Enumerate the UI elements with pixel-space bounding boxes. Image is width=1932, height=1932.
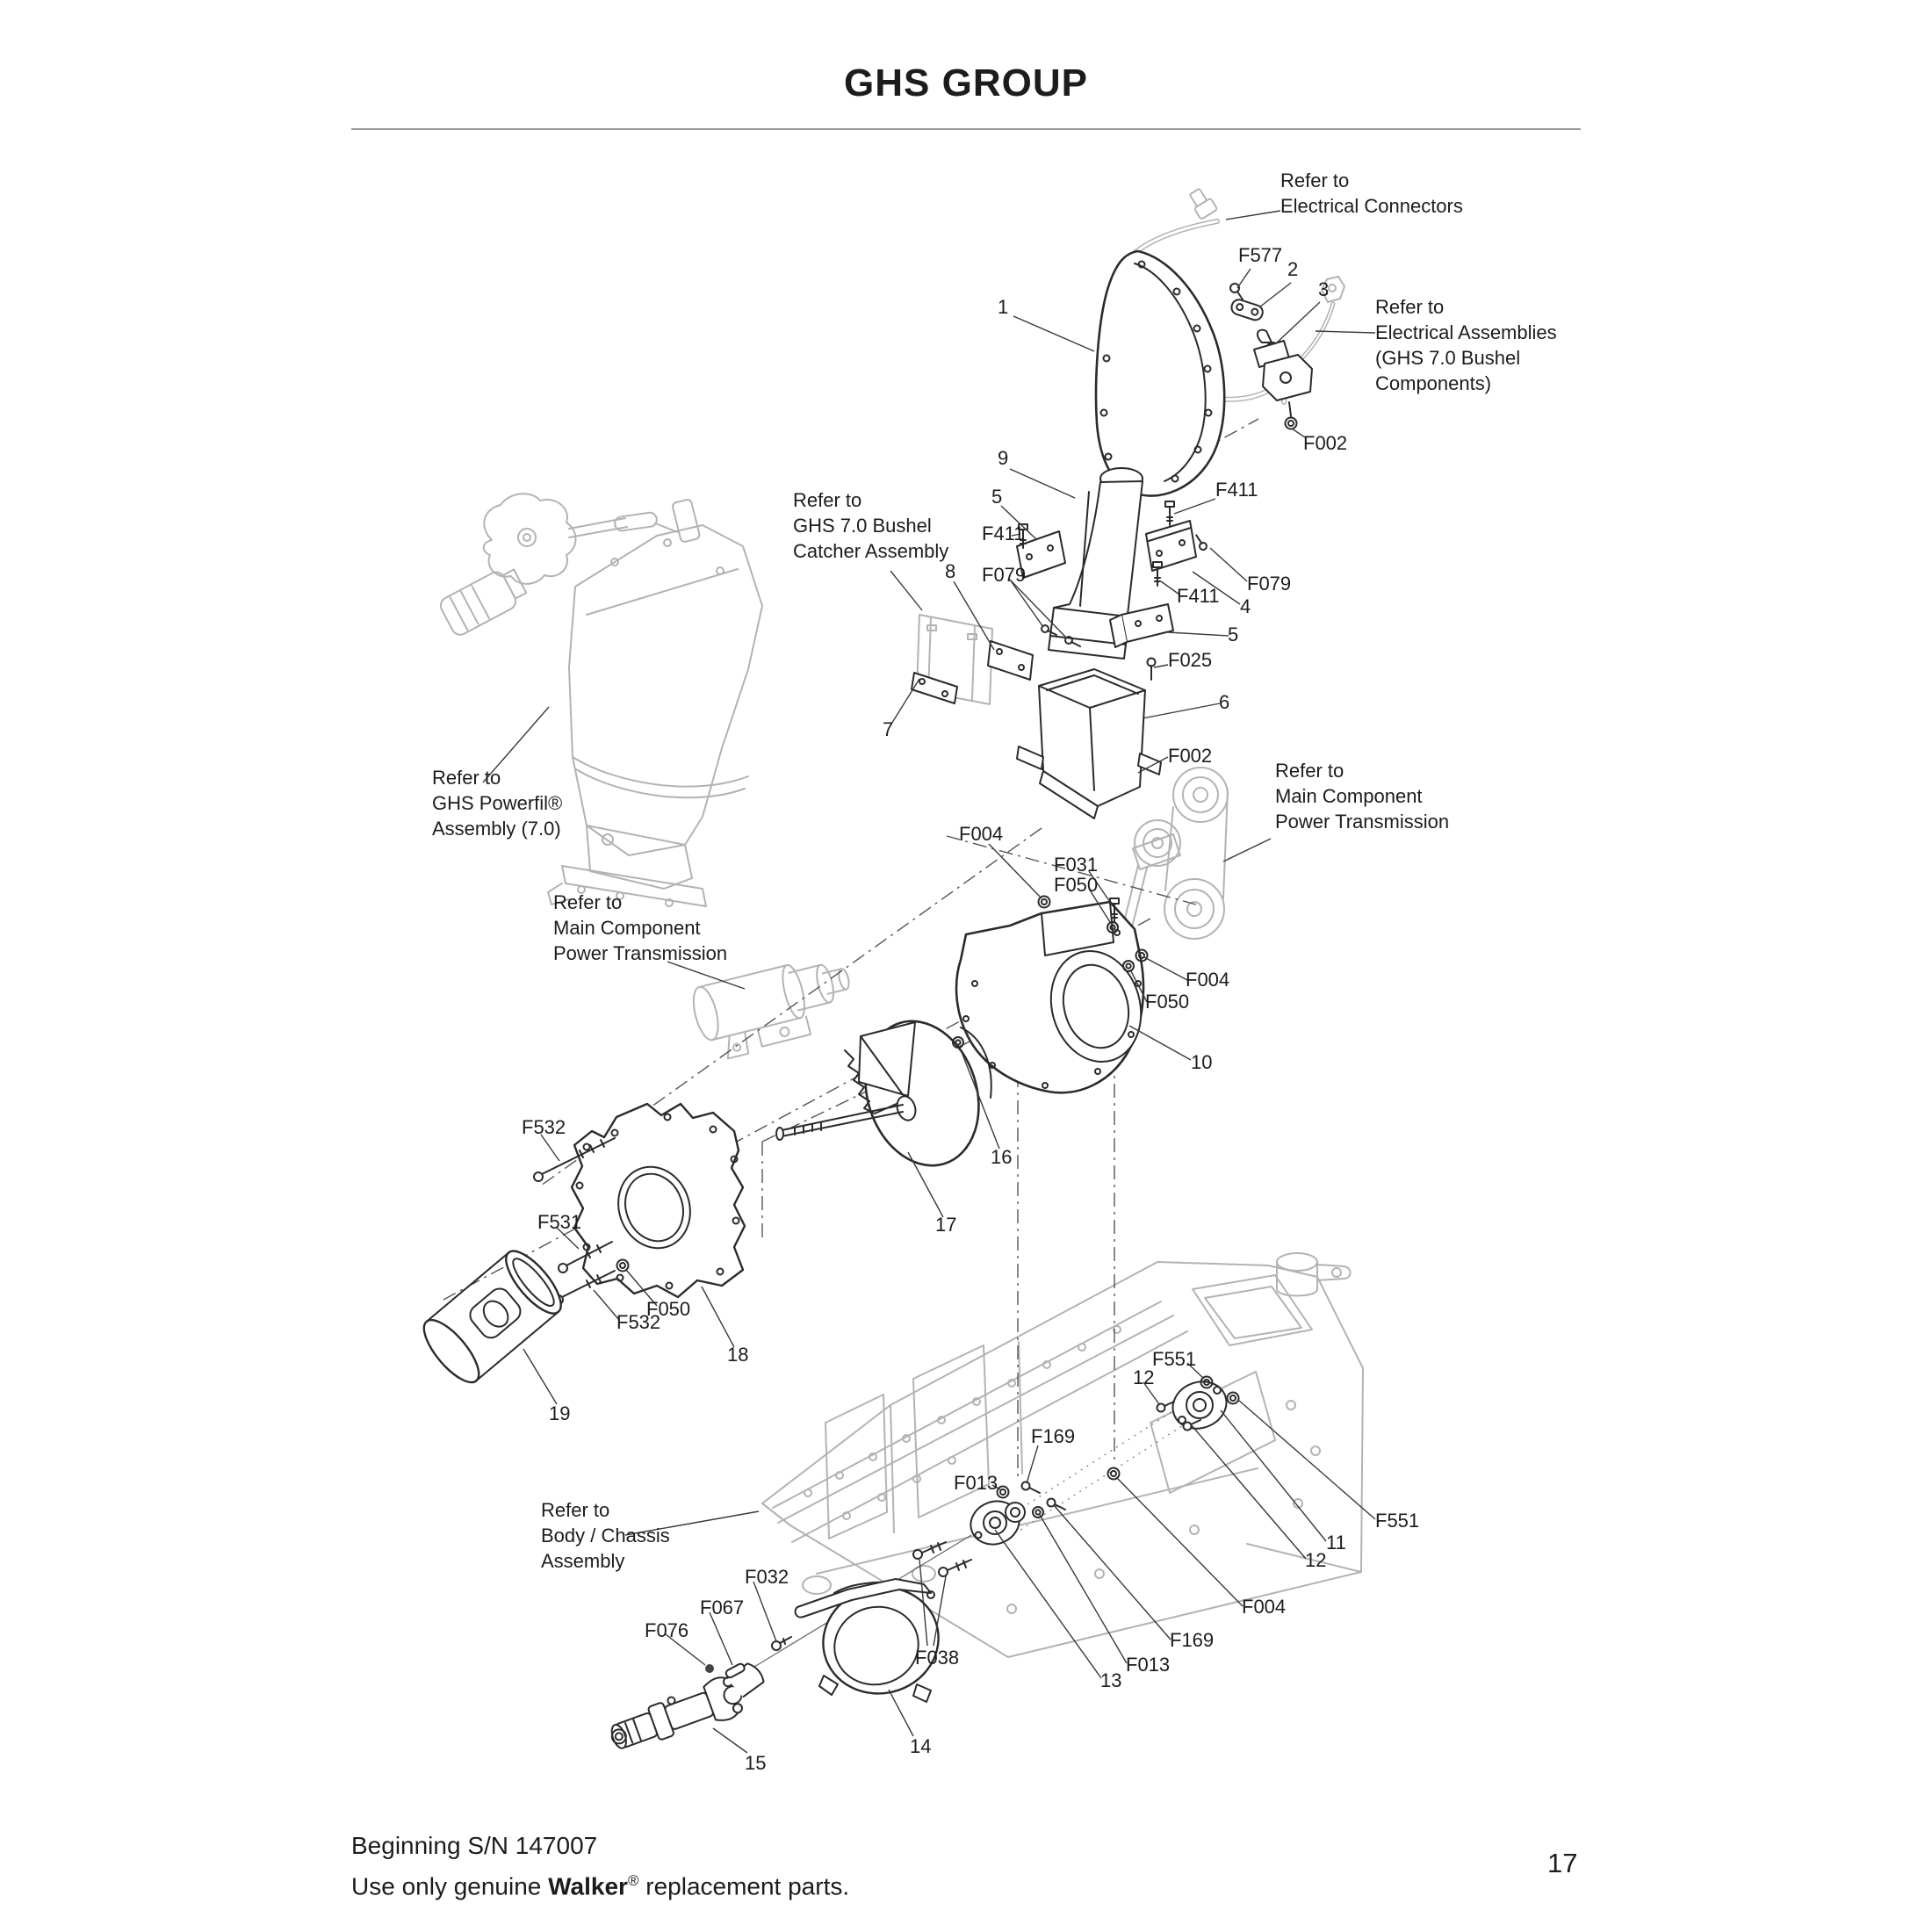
part-label-f532: F532 [616, 1311, 660, 1333]
part-label-f004: F004 [1242, 1596, 1286, 1618]
part-label-9: 9 [998, 447, 1008, 469]
ghs-powerfil-assembly [437, 494, 762, 906]
part-label-19: 19 [549, 1402, 570, 1424]
f411-bolt-top-right [1165, 501, 1174, 525]
note-electrical-assemblies: Refer toElectrical Assemblies(GHS 7.0 Bu… [1375, 296, 1557, 394]
leader-lines [483, 211, 1375, 1753]
part-label-10: 10 [1191, 1051, 1212, 1073]
part-8-strap [988, 641, 1033, 680]
footer-text: Beginning S/N 147007 Use only genuine Wa… [351, 1828, 849, 1904]
part-label-f067: F067 [700, 1597, 744, 1618]
part-label-f076: F076 [645, 1619, 688, 1641]
part-label-11: 11 [1326, 1532, 1346, 1554]
part-11-bearing-upper [1166, 1374, 1233, 1436]
f004-nut-chassis [1108, 1468, 1120, 1480]
f076-set-screw [705, 1664, 714, 1673]
part-label-f079: F079 [982, 564, 1026, 586]
f551-nut-right [1228, 1393, 1239, 1404]
part-label-f004: F004 [1186, 969, 1229, 991]
registered-mark: ® [628, 1872, 639, 1889]
note-ghs-powerfil-assembly: Refer toGHS Powerfil®Assembly (7.0) [432, 767, 562, 840]
part-label-f050: F050 [1145, 991, 1189, 1013]
part-label-f411: F411 [982, 523, 1025, 544]
part-label-5: 5 [1228, 624, 1238, 645]
part-label-7: 7 [883, 718, 893, 740]
refer-to-notes: Refer toElectrical ConnectorsRefer toEle… [432, 169, 1557, 1572]
part-7-strap [912, 673, 957, 703]
f577-screw [1230, 284, 1243, 299]
part-label-18: 18 [727, 1344, 748, 1366]
part-label-f004: F004 [959, 823, 1003, 845]
part-18-fan-plate [572, 1104, 745, 1297]
page-number: 17 [1547, 1848, 1577, 1879]
part-label-f411: F411 [1215, 479, 1258, 501]
part-label-f169: F169 [1031, 1425, 1075, 1447]
exploded-parts-diagram: Refer toElectrical ConnectorsRefer toEle… [0, 0, 1932, 1932]
pto-coupler [689, 952, 861, 1064]
manual-page: GHS GROUP [0, 0, 1932, 1932]
part-label-f013: F013 [1126, 1654, 1170, 1676]
part-10-blower-housing [956, 902, 1154, 1092]
part-3-latch [1254, 330, 1312, 429]
part-label-13: 13 [1100, 1669, 1121, 1691]
part-label-f038: F038 [915, 1647, 959, 1669]
part-label-f002: F002 [1303, 432, 1347, 454]
part-label-15: 15 [745, 1752, 766, 1774]
part-15-ujoint [604, 1661, 772, 1759]
part-label-f169: F169 [1170, 1629, 1214, 1651]
part-label-f013: F013 [954, 1472, 998, 1494]
part-label-2: 2 [1287, 258, 1298, 280]
part-label-3: 3 [1318, 278, 1329, 300]
part-label-1: 1 [998, 296, 1008, 318]
part-label-6: 6 [1219, 691, 1229, 713]
part-label-f532: F532 [522, 1116, 566, 1138]
part-label-f025: F025 [1168, 649, 1212, 671]
f004-nut-left [1039, 897, 1050, 908]
part-label-f002: F002 [1168, 745, 1212, 767]
electrical-connector-icon [1186, 186, 1217, 220]
part-label-f079: F079 [1247, 573, 1291, 595]
part-6-catcher-box [1017, 669, 1161, 818]
brand-name: Walker [548, 1872, 628, 1900]
part-label-17: 17 [935, 1214, 956, 1236]
part-2-plate [1229, 298, 1264, 321]
part-label-f032: F032 [745, 1566, 789, 1588]
part-label-12: 12 [1305, 1549, 1326, 1571]
f532-bolt-lower [554, 1271, 615, 1304]
part-label-5: 5 [991, 486, 1002, 508]
part-19-tube [415, 1244, 570, 1391]
part-label-f031: F031 [1054, 854, 1098, 876]
part-label-f531: F531 [537, 1211, 581, 1233]
part-12-bolt-a [1157, 1402, 1175, 1412]
part-label-f577: F577 [1238, 244, 1282, 266]
note-electrical-connectors: Refer toElectrical Connectors [1280, 169, 1463, 217]
part-1-discharge-cover [1096, 251, 1224, 496]
part-label-16: 16 [991, 1146, 1012, 1168]
part-label-12: 12 [1133, 1366, 1154, 1388]
part-label-f551: F551 [1375, 1510, 1419, 1532]
part-label-f411: F411 [1177, 585, 1220, 607]
footer-genuine-line: Use only genuine Walker® replacement par… [351, 1864, 849, 1904]
note-main-component-power-transmission-left: Refer toMain ComponentPower Transmission [553, 891, 727, 964]
f038-bolt-a [913, 1542, 946, 1559]
note-bushel-catcher-assembly: Refer toGHS 7.0 BushelCatcher Assembly [793, 489, 948, 562]
f013-washer-lower [1033, 1507, 1043, 1517]
note-body-chassis-assembly: Refer toBody / ChassisAssembly [541, 1499, 670, 1572]
f038-bolt-b [939, 1560, 971, 1576]
footer-serial-line: Beginning S/N 147007 [351, 1828, 849, 1864]
note-main-component-power-transmission-right: Refer toMain ComponentPower Transmission [1275, 760, 1449, 833]
part-label-f050: F050 [1054, 874, 1098, 896]
f169-bolt-a [1022, 1482, 1041, 1494]
part-label-f551: F551 [1152, 1348, 1196, 1370]
part-label-14: 14 [910, 1735, 931, 1757]
part-13-bearing-lower [964, 1495, 1025, 1551]
part-label-8: 8 [945, 560, 955, 582]
power-transmission-pulleys [1118, 768, 1228, 940]
part-label-4: 4 [1240, 595, 1251, 617]
f025-screw [1148, 659, 1156, 681]
